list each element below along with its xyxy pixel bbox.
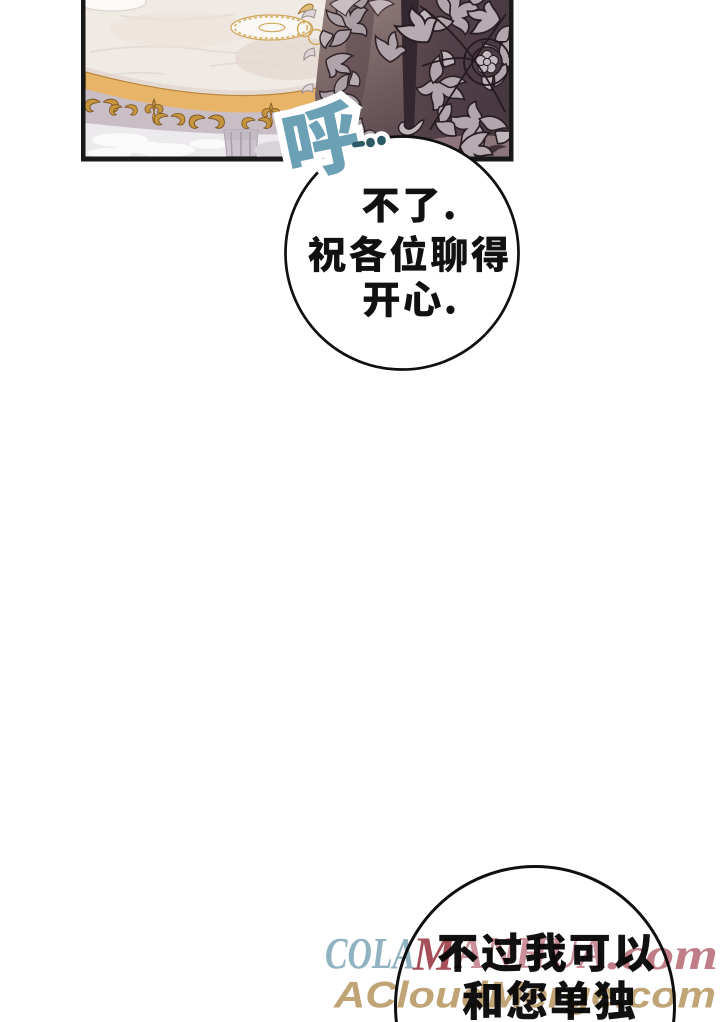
svg-text:ACloudMerge.com: ACloudMerge.com — [333, 974, 716, 1016]
svg-text:.com: .com — [607, 930, 718, 979]
svg-text:ANHUA: ANHUA — [453, 928, 607, 978]
svg-text:COLA: COLA — [325, 929, 415, 978]
